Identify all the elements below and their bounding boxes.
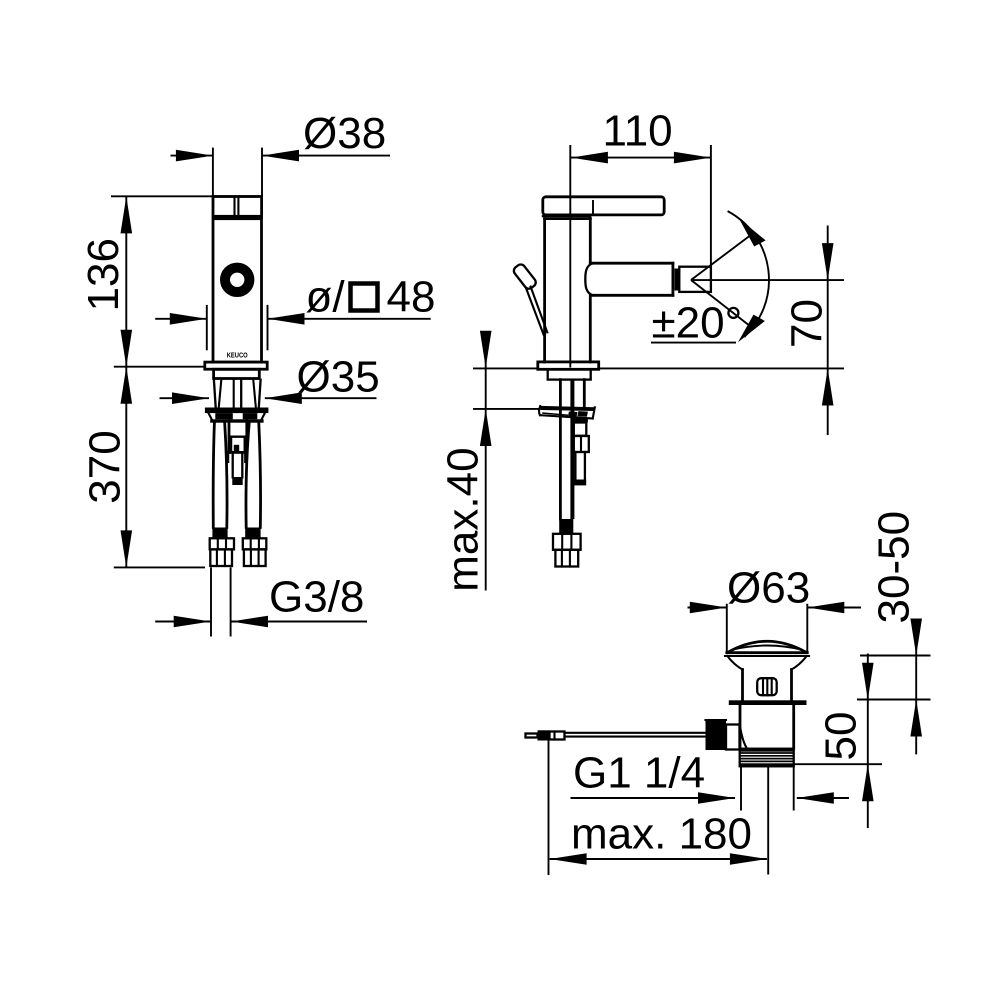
svg-text:max.40: max.40 bbox=[439, 447, 488, 591]
svg-text:ø/: ø/ bbox=[306, 273, 346, 322]
svg-text:110: 110 bbox=[603, 107, 673, 156]
svg-text:±20°: ±20° bbox=[652, 299, 743, 348]
svg-text:Ø63: Ø63 bbox=[727, 564, 810, 613]
svg-text:30-50: 30-50 bbox=[870, 511, 919, 624]
svg-text:KEUCO: KEUCO bbox=[227, 350, 248, 359]
svg-text:Ø35: Ø35 bbox=[297, 353, 380, 402]
svg-text:max. 180: max. 180 bbox=[571, 810, 752, 859]
svg-text:70: 70 bbox=[783, 299, 832, 348]
svg-text:G3/8: G3/8 bbox=[269, 573, 364, 622]
svg-text:370: 370 bbox=[80, 430, 129, 503]
svg-text:50: 50 bbox=[817, 712, 866, 761]
svg-text:Ø38: Ø38 bbox=[303, 109, 386, 158]
svg-text:48: 48 bbox=[387, 273, 436, 322]
svg-text:G1 1/4: G1 1/4 bbox=[573, 749, 705, 798]
svg-text:136: 136 bbox=[79, 238, 128, 311]
